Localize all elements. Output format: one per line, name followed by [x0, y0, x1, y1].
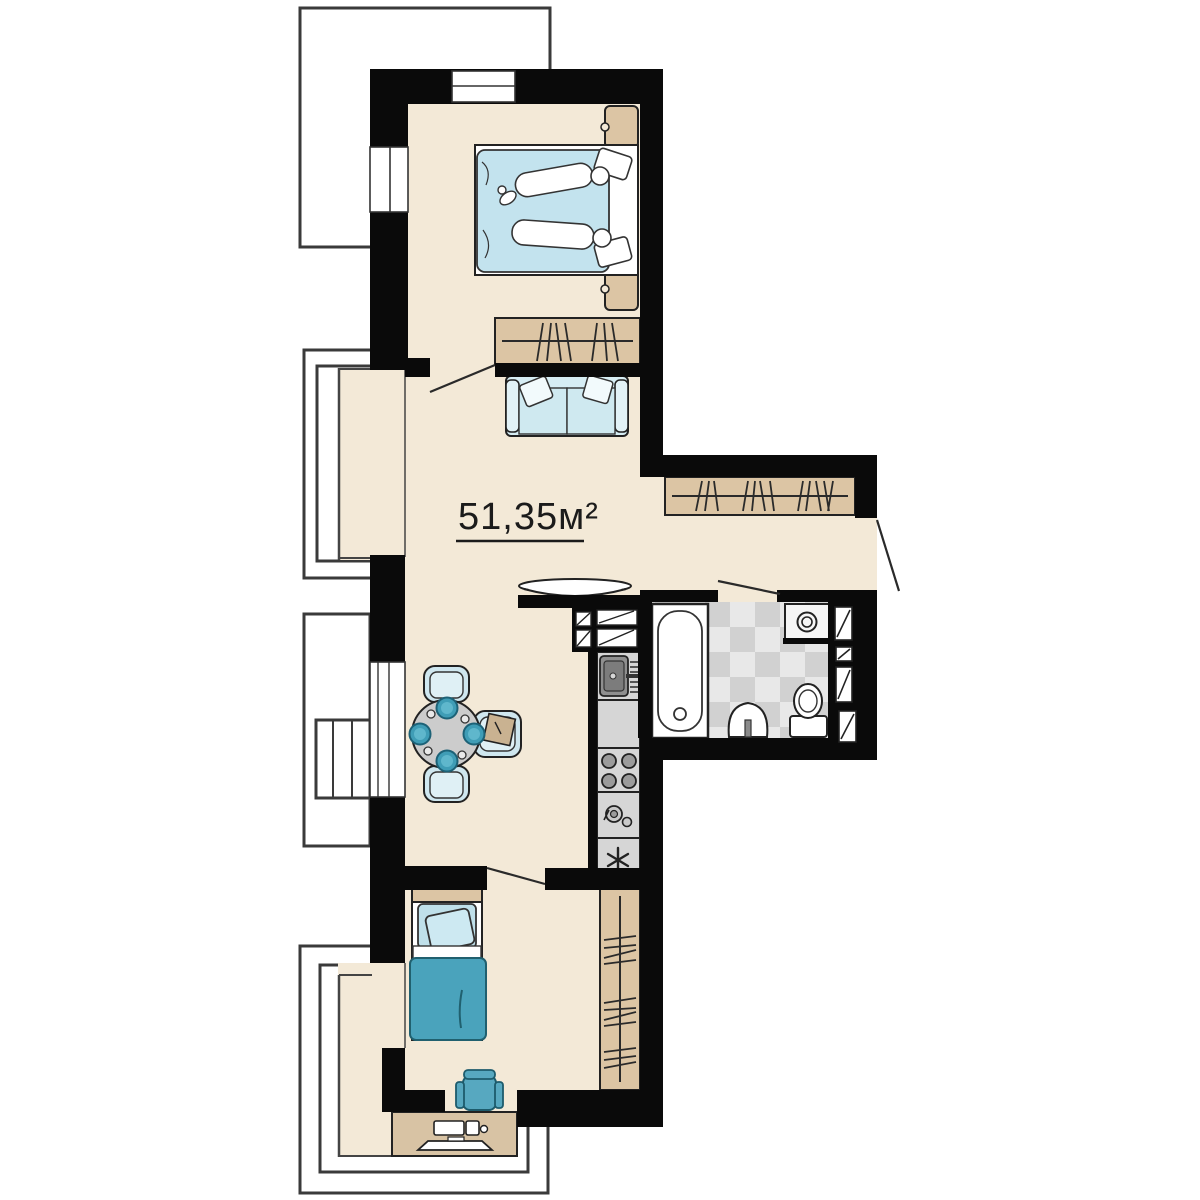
area-label: 51,35м² [456, 496, 599, 541]
kitchen-unit [597, 652, 644, 882]
washing-machine-icon [783, 604, 830, 644]
monitor [418, 1141, 492, 1150]
nightstand-icon [601, 106, 638, 148]
wall [640, 69, 663, 457]
floor-plan-page: 51,35м² [0, 0, 1200, 1200]
wall [588, 652, 597, 882]
wall [370, 69, 663, 104]
counter-cell [597, 700, 640, 748]
wall [495, 363, 640, 377]
wall [777, 590, 877, 602]
washer-threshold [783, 638, 830, 644]
wall [545, 868, 640, 890]
desk-icon [392, 1112, 517, 1156]
wall [405, 358, 430, 377]
wall [370, 69, 408, 370]
bathtub-icon [652, 604, 708, 738]
double-bed-icon [475, 145, 638, 275]
balcony-lower-left-ladder [316, 720, 370, 798]
keyboard [434, 1121, 464, 1135]
wall [855, 592, 877, 760]
duvet [410, 958, 486, 1040]
wardrobe-icon [600, 888, 640, 1090]
mousepad [466, 1121, 479, 1135]
sofa-icon [506, 375, 628, 436]
wall [370, 797, 405, 963]
wall [382, 1090, 445, 1112]
single-bed-icon [410, 888, 486, 1040]
wall [640, 738, 663, 1090]
floor-entry-threshold [855, 518, 877, 592]
wall [638, 602, 652, 738]
furniture-bedroom-1 [475, 106, 640, 365]
wall [405, 866, 487, 890]
wall [518, 595, 640, 608]
furniture-hallway [665, 477, 855, 515]
wall [640, 590, 718, 602]
wardrobe-icon [495, 318, 640, 365]
wall [517, 1090, 663, 1127]
monitor-stand [448, 1137, 464, 1141]
window-icon [370, 662, 405, 797]
floor-plan-canvas: 51,35м² [0, 0, 1200, 1200]
area-label-text: 51,35м² [458, 496, 599, 538]
wall [370, 555, 405, 662]
wall [855, 477, 877, 518]
window-icon [452, 71, 515, 102]
wall [640, 455, 877, 477]
floor-bay-living [338, 368, 408, 560]
mouse [481, 1126, 488, 1133]
wardrobe-icon [665, 477, 855, 515]
headboard [412, 888, 482, 902]
window-icon [370, 147, 408, 212]
